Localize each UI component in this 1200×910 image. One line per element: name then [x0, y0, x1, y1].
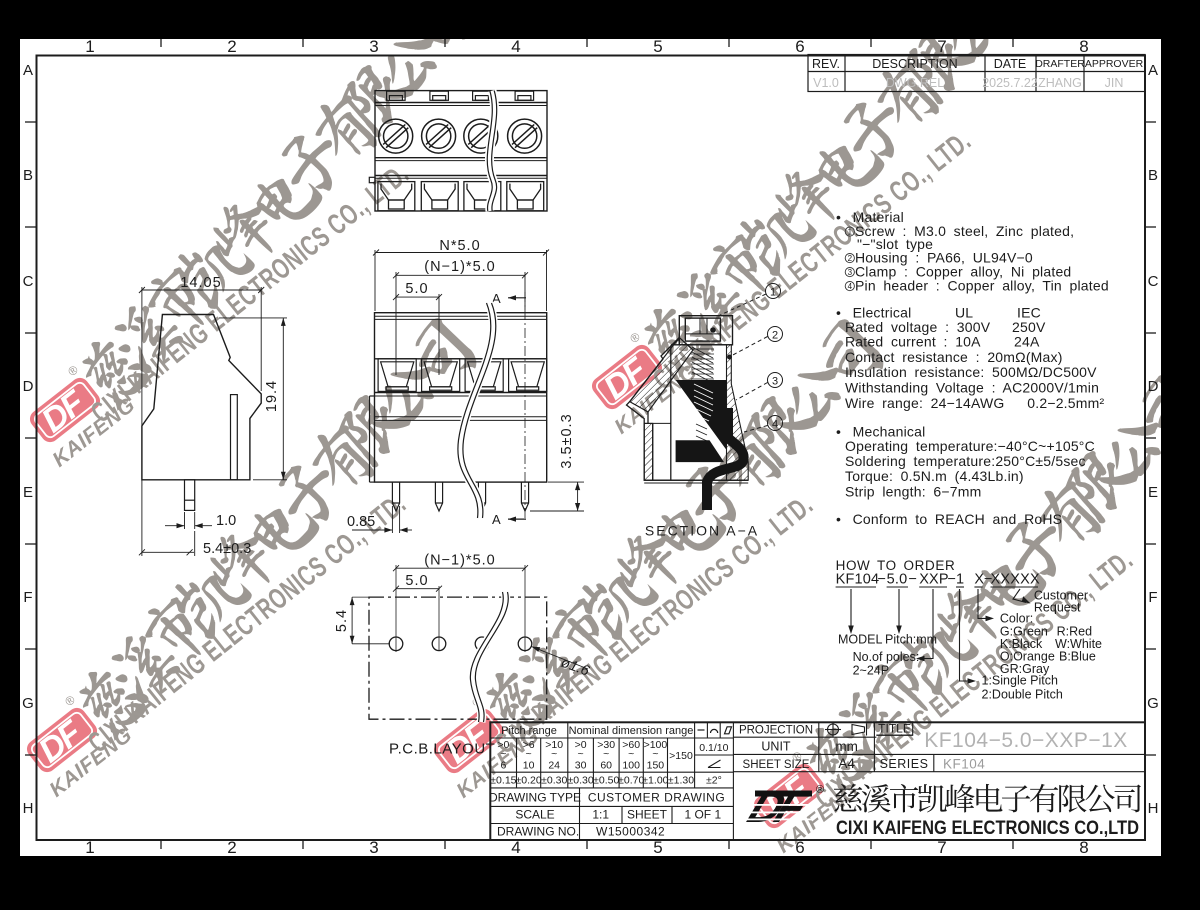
svg-text:±0.20: ±0.20	[515, 775, 541, 787]
svg-text:2: 2	[848, 254, 853, 263]
svg-text:Torque: 0.5N.m (4.43Lb.in): Torque: 0.5N.m (4.43Lb.in)	[845, 468, 1024, 484]
svg-text:SHEET SIZE: SHEET SIZE	[743, 759, 810, 771]
svg-text:2: 2	[772, 330, 778, 342]
svg-text:Contact resistance : 20mΩ(Max): Contact resistance : 20mΩ(Max)	[845, 349, 1063, 365]
svg-text:Color:: Color:	[1000, 612, 1033, 626]
svg-text:W15000342: W15000342	[596, 825, 665, 839]
svg-text:®: ®	[816, 784, 824, 796]
svg-text:7: 7	[937, 37, 946, 56]
svg-text:±2°: ±2°	[706, 775, 722, 787]
svg-text:10: 10	[523, 760, 535, 772]
svg-text:DRAFTER: DRAFTER	[1035, 58, 1085, 70]
svg-text:4: 4	[848, 282, 853, 291]
svg-text:Strip length: 6−7mm: Strip length: 6−7mm	[845, 484, 981, 500]
svg-text:5: 5	[653, 37, 662, 56]
svg-text:~: ~	[628, 748, 634, 760]
svg-text:Wire range: 24−14AWG 0.2−2.5: Wire range: 24−14AWG 0.2−2.5mm²	[845, 395, 1104, 411]
svg-text:KF104: KF104	[836, 572, 880, 588]
svg-text:XXXXX: XXXXX	[991, 572, 1040, 588]
svg-text:4: 4	[511, 37, 520, 56]
svg-text:JIN: JIN	[1105, 76, 1124, 90]
svg-text:C: C	[23, 273, 34, 290]
svg-text:0.1/10: 0.1/10	[699, 742, 728, 754]
svg-text:>150: >150	[669, 750, 693, 762]
svg-text:PROJECTION: PROJECTION	[739, 725, 813, 737]
svg-text:3: 3	[369, 37, 378, 56]
svg-text:1: 1	[956, 572, 964, 588]
svg-text:CIXI KAIFENG ELECTRONICS CO.,L: CIXI KAIFENG ELECTRONICS CO.,LTD	[836, 817, 1139, 839]
svg-text:ZHANG: ZHANG	[1038, 76, 1082, 90]
svg-text:D: D	[1148, 378, 1159, 395]
svg-text:P.C.B.LAYOUT: P.C.B.LAYOUT	[389, 741, 495, 758]
svg-text:• Conform to REACH and RoHS: • Conform to REACH and RoHS	[836, 511, 1062, 527]
svg-text:1 OF 1: 1 OF 1	[684, 808, 721, 822]
svg-text:6: 6	[795, 37, 804, 56]
svg-text:A: A	[492, 512, 501, 527]
svg-text:Request: Request	[1034, 601, 1081, 615]
svg-text:2025.7.22: 2025.7.22	[982, 76, 1038, 90]
svg-text:N*5.0: N*5.0	[439, 238, 480, 254]
svg-text:19.4: 19.4	[264, 380, 280, 412]
svg-text:3: 3	[848, 268, 853, 277]
svg-text:6: 6	[500, 760, 506, 772]
svg-text:150: 150	[647, 760, 665, 772]
svg-text:DESCRIPTION: DESCRIPTION	[872, 57, 957, 71]
svg-text:Withstanding Voltage : AC2000V: Withstanding Voltage : AC2000V/1min	[845, 380, 1099, 396]
svg-text:−: −	[948, 572, 957, 588]
svg-text:±0.15: ±0.15	[490, 775, 516, 787]
svg-text:~: ~	[500, 748, 506, 760]
svg-text:±0.30: ±0.30	[541, 775, 567, 787]
svg-text:−: −	[878, 572, 887, 588]
svg-text:DATE: DATE	[994, 57, 1026, 71]
svg-text:F: F	[23, 589, 32, 606]
svg-text:−: −	[909, 572, 918, 588]
svg-text:24: 24	[548, 760, 560, 772]
svg-text:SHEET: SHEET	[627, 808, 668, 822]
svg-text:5.4±0.3: 5.4±0.3	[203, 541, 251, 557]
svg-text:Pitch range: Pitch range	[501, 725, 557, 737]
svg-text:Nominal dimension range: Nominal dimension range	[569, 725, 694, 737]
svg-text:DRAWING NO.: DRAWING NO.	[497, 825, 579, 839]
svg-text:SCALE: SCALE	[515, 808, 554, 822]
svg-text:±0.70: ±0.70	[618, 775, 644, 787]
svg-text:2: 2	[227, 37, 236, 56]
svg-text:DWG.REL: DWG.REL	[886, 76, 944, 90]
svg-text:14.05: 14.05	[180, 275, 221, 291]
svg-text:DRAWING TYPE: DRAWING TYPE	[489, 791, 581, 805]
svg-text:3: 3	[369, 838, 378, 857]
svg-text:Pin header : Copper alloy, Tin: Pin header : Copper alloy, Tin plated	[855, 278, 1109, 294]
svg-text:B: B	[1148, 167, 1158, 184]
svg-text:G: G	[1147, 695, 1159, 712]
svg-text:(N−1)*5.0: (N−1)*5.0	[424, 553, 495, 569]
svg-text:3.5±0.3: 3.5±0.3	[559, 413, 575, 468]
svg-text:4: 4	[772, 419, 778, 431]
svg-text:B:Blue: B:Blue	[1059, 650, 1096, 664]
svg-text:8: 8	[1079, 37, 1088, 56]
svg-text:~: ~	[603, 748, 609, 760]
svg-text:5.0: 5.0	[887, 572, 908, 588]
svg-text:~: ~	[652, 748, 658, 760]
svg-text:mm: mm	[835, 739, 858, 754]
svg-text:0.85: 0.85	[347, 514, 375, 530]
svg-text:(N−1)*5.0: (N−1)*5.0	[424, 259, 495, 275]
svg-text:60: 60	[600, 760, 612, 772]
svg-text:Pitch:mm: Pitch:mm	[885, 633, 937, 647]
svg-text:2:Double Pitch: 2:Double Pitch	[982, 688, 1063, 702]
svg-text:Operating temperature:−40°C~+1: Operating temperature:−40°C~+105°C	[845, 438, 1095, 454]
svg-text:G: G	[22, 695, 34, 712]
svg-text:A: A	[1148, 62, 1158, 79]
svg-text:3: 3	[772, 376, 778, 388]
svg-text:5.4: 5.4	[334, 609, 350, 632]
svg-text:30: 30	[575, 760, 587, 772]
svg-text:1: 1	[85, 37, 94, 56]
svg-text:100: 100	[622, 760, 640, 772]
svg-text:KF104−5.0−XXP−1X: KF104−5.0−XXP−1X	[924, 729, 1128, 752]
svg-text:5.0: 5.0	[405, 573, 428, 589]
svg-text:B: B	[23, 167, 33, 184]
svg-text:2: 2	[227, 838, 236, 857]
svg-text:TITLE: TITLE	[878, 722, 911, 736]
svg-text:MODEL: MODEL	[838, 633, 883, 647]
svg-text:~: ~	[551, 748, 557, 760]
svg-text:D: D	[23, 378, 34, 395]
svg-text:REV.: REV.	[812, 57, 840, 71]
svg-text:E: E	[23, 484, 33, 501]
svg-text:H: H	[23, 800, 34, 817]
svg-text:XXP: XXP	[919, 572, 949, 588]
svg-text:5.0: 5.0	[405, 281, 428, 297]
svg-text:±0.30: ±0.30	[567, 775, 593, 787]
svg-text:C: C	[1148, 273, 1159, 290]
svg-text:1: 1	[85, 838, 94, 857]
svg-text:CUSTOMER DRAWING: CUSTOMER DRAWING	[588, 791, 725, 805]
svg-text:F: F	[1148, 589, 1157, 606]
svg-text:±1.00: ±1.00	[642, 775, 668, 787]
svg-text:H: H	[1148, 800, 1159, 817]
svg-text:A: A	[23, 62, 33, 79]
svg-text:X: X	[974, 572, 984, 588]
svg-text:1.0: 1.0	[216, 513, 236, 529]
svg-text:SERIES: SERIES	[880, 757, 929, 771]
svg-text:1: 1	[770, 287, 776, 299]
svg-text:1: 1	[848, 227, 853, 236]
svg-text:APPROVER: APPROVER	[1085, 58, 1144, 70]
svg-text:No.of poles:: No.of poles:	[853, 650, 920, 664]
svg-text:~: ~	[578, 748, 584, 760]
svg-text:KF104: KF104	[943, 757, 985, 772]
svg-text:A4: A4	[838, 756, 855, 771]
svg-text:Insulation resistance: 500MΩ/D: Insulation resistance: 500MΩ/DC500V	[845, 364, 1097, 380]
svg-text:Soldering temperature:250°C±5/: Soldering temperature:250°C±5/5sec	[845, 453, 1086, 469]
svg-text:SECTION A−A: SECTION A−A	[645, 523, 759, 539]
svg-text:2~24P: 2~24P	[853, 664, 890, 678]
svg-text:E: E	[1148, 484, 1158, 501]
svg-text:1:1: 1:1	[592, 808, 609, 822]
svg-text:GR:Gray: GR:Gray	[1000, 662, 1050, 676]
svg-text:±0.50: ±0.50	[593, 775, 619, 787]
svg-text:UNIT: UNIT	[761, 740, 791, 754]
svg-text:V1.0: V1.0	[813, 76, 839, 90]
svg-text:~: ~	[526, 748, 532, 760]
svg-text:±1.30: ±1.30	[668, 775, 694, 787]
